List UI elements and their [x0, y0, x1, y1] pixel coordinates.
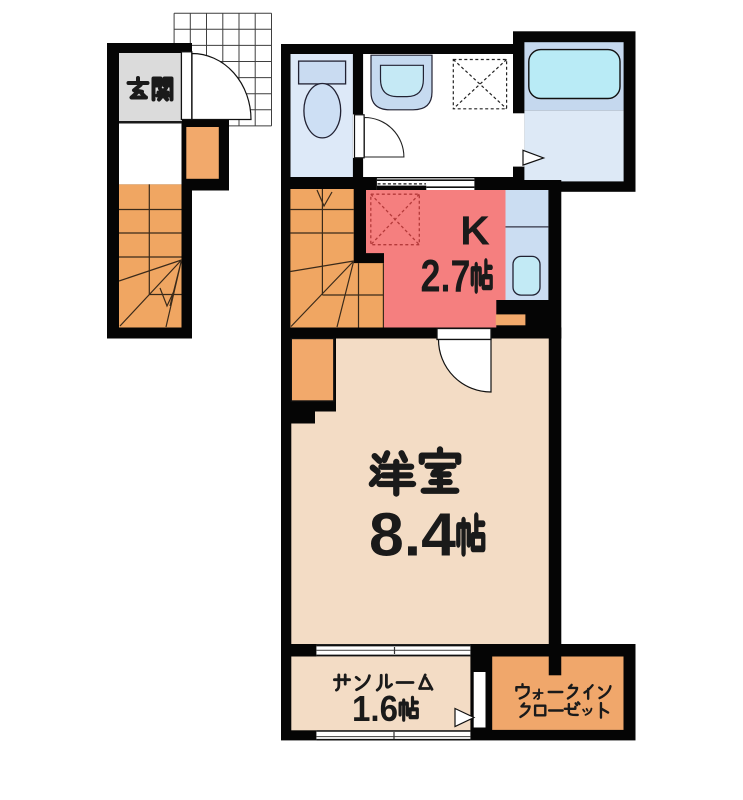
svg-text:8.4: 8.4 [369, 501, 456, 569]
svg-text:1.6: 1.6 [352, 688, 398, 729]
svg-text:2.7: 2.7 [421, 251, 471, 302]
svg-text:K: K [460, 208, 490, 254]
